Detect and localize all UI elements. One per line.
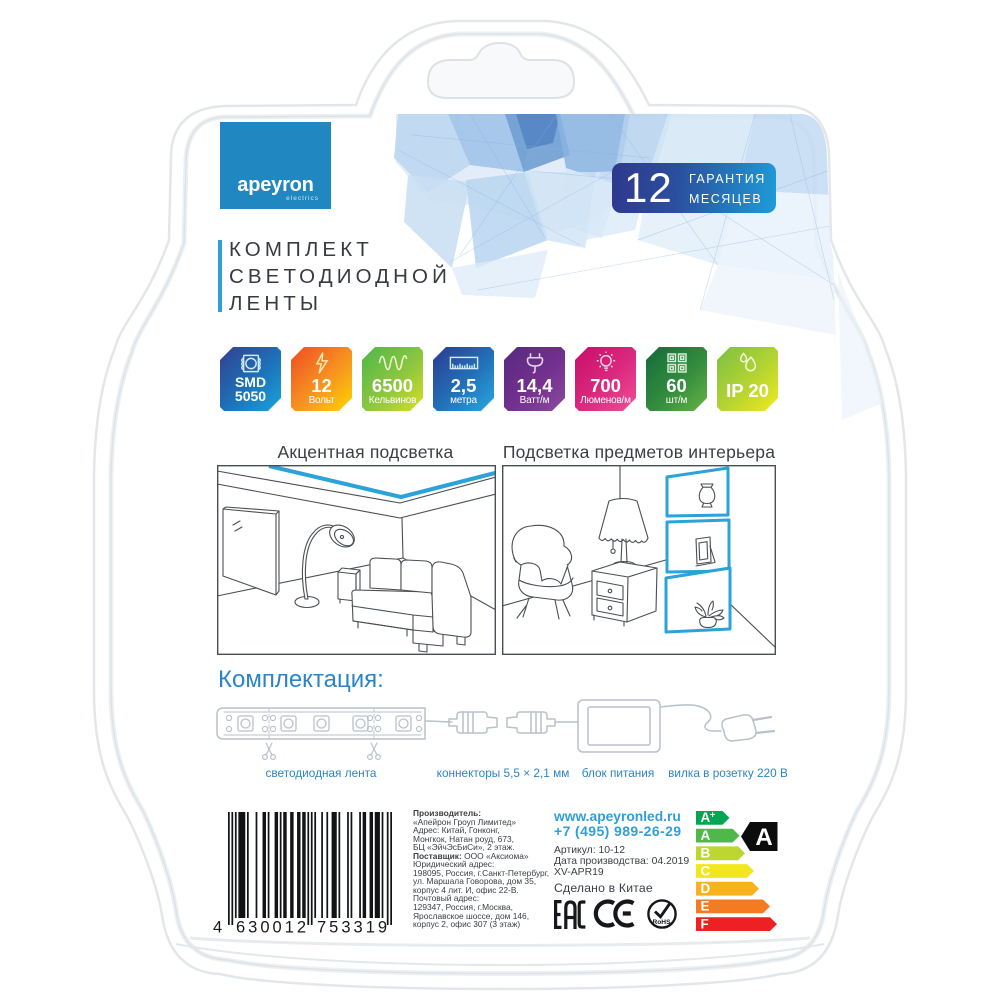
- svg-text:B: B: [701, 846, 711, 861]
- svg-text:630012: 630012: [236, 919, 309, 937]
- svg-text:C: C: [701, 863, 711, 878]
- svg-text:RoHS: RoHS: [653, 919, 672, 926]
- svg-text:4: 4: [213, 919, 225, 937]
- svg-text:E: E: [701, 899, 710, 914]
- svg-text:A: A: [755, 824, 772, 851]
- svg-text:753319: 753319: [317, 919, 390, 937]
- svg-text:+: +: [710, 810, 715, 820]
- svg-text:F: F: [701, 916, 709, 931]
- svg-text:A: A: [701, 828, 711, 843]
- svg-text:A: A: [701, 810, 711, 825]
- svg-text:D: D: [701, 881, 711, 896]
